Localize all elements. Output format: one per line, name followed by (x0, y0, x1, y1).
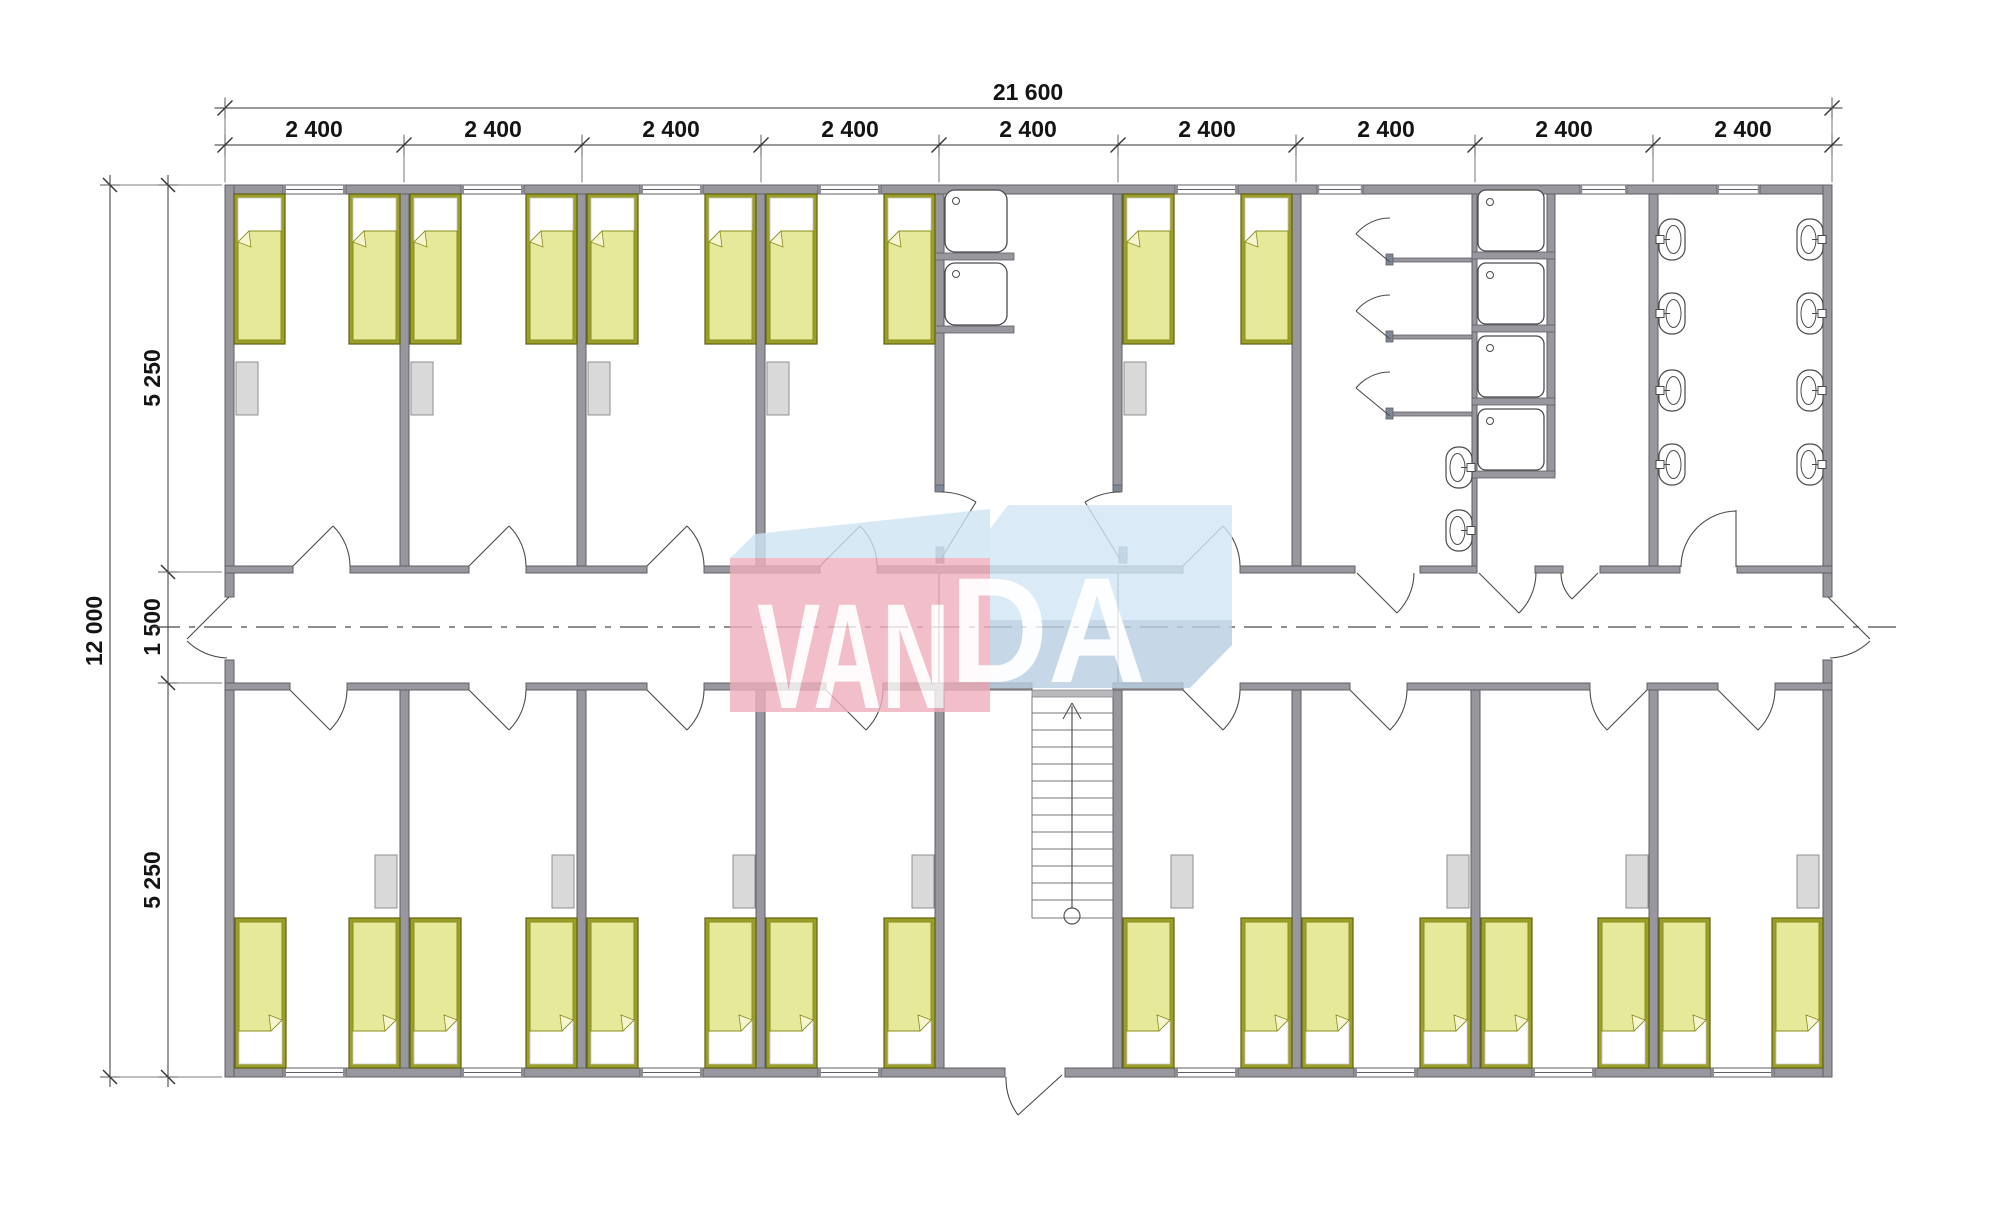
shower-tray (1478, 190, 1544, 251)
dimension-left: 12 000 5 250 1 500 5 250 (81, 175, 222, 1087)
door-swing (1350, 690, 1407, 730)
wash-basin (1656, 370, 1685, 411)
bed (884, 918, 935, 1068)
door-swing (647, 526, 704, 566)
bed (1598, 918, 1649, 1068)
door-swing (290, 690, 347, 730)
window (1317, 185, 1363, 194)
window (1175, 185, 1238, 194)
wash-basin (1797, 444, 1826, 485)
kitchen-sink (945, 190, 1007, 252)
locker (733, 855, 755, 908)
dim-seg: 2 400 (1357, 116, 1415, 142)
window (1175, 1068, 1238, 1077)
dim-seg: 2 400 (1714, 116, 1772, 142)
door-swing (1357, 573, 1414, 613)
window (1711, 1068, 1774, 1077)
dim-seg: 2 400 (821, 116, 879, 142)
vanda-watermark: VAN DA (730, 505, 1232, 740)
door-swing (647, 690, 704, 730)
bed (410, 194, 461, 344)
door-swing (1479, 573, 1536, 613)
locker (236, 362, 258, 415)
dim-seg: 2 400 (999, 116, 1057, 142)
locker (767, 362, 789, 415)
bed (1420, 918, 1471, 1068)
wash-basin (1656, 293, 1685, 334)
locker (1171, 855, 1193, 908)
dim-seg: 2 400 (464, 116, 522, 142)
window (1717, 185, 1760, 194)
bed (1123, 194, 1174, 344)
door-swing (1590, 690, 1647, 730)
dim-seg: 5 250 (139, 851, 165, 909)
bed (234, 194, 285, 344)
floor-plan-canvas: 21 600 2 400 2 400 2 400 2 400 2 400 2 4… (0, 0, 2000, 1219)
door-swing (1356, 218, 1390, 262)
bed (1302, 918, 1353, 1068)
door-swing (1681, 510, 1736, 567)
window (640, 185, 703, 194)
bed (705, 918, 756, 1068)
wash-basin (1797, 293, 1826, 334)
door-swing (1718, 690, 1775, 730)
window (1532, 1068, 1595, 1077)
dim-seg: 2 400 (1535, 116, 1593, 142)
locker (411, 362, 433, 415)
watermark-text-da: DA (950, 546, 1146, 714)
bed (587, 918, 638, 1068)
wash-basin (1656, 219, 1685, 260)
bed (349, 194, 400, 344)
bed (1659, 918, 1710, 1068)
door-swing (1356, 295, 1390, 339)
locker (552, 855, 574, 908)
bed (349, 918, 400, 1068)
dim-seg: 5 250 (139, 349, 165, 407)
door-swing (469, 526, 526, 566)
wash-basin (1446, 510, 1475, 551)
bed (410, 918, 461, 1068)
locker (1626, 855, 1648, 908)
window (1580, 185, 1627, 194)
wash-basin (1446, 447, 1475, 488)
floor-plan-svg: 21 600 2 400 2 400 2 400 2 400 2 400 2 4… (0, 0, 2000, 1219)
locker (1447, 855, 1469, 908)
shower-tray (1478, 336, 1544, 397)
bed (884, 194, 935, 344)
stairs (1032, 690, 1113, 924)
wash-basin (1797, 370, 1826, 411)
sanitary-fixtures (945, 190, 1826, 551)
window (818, 1068, 881, 1077)
door-swing (1561, 573, 1598, 599)
bed (1772, 918, 1823, 1068)
window (461, 1068, 524, 1077)
stair-start-circle (1064, 908, 1080, 924)
stair-direction (1063, 703, 1081, 924)
window (283, 1068, 346, 1077)
door-swing (1183, 690, 1240, 730)
kitchen-sink (945, 263, 1007, 325)
bed (766, 194, 817, 344)
wash-basin (1656, 444, 1685, 485)
dim-top-total: 21 600 (993, 79, 1063, 105)
door-swing (1006, 1075, 1062, 1115)
bed (1481, 918, 1532, 1068)
shower-tray (1478, 263, 1544, 324)
wash-basin (1797, 219, 1826, 260)
bed (1241, 194, 1292, 344)
locker (375, 855, 397, 908)
bed (1123, 918, 1174, 1068)
dim-seg: 2 400 (285, 116, 343, 142)
watermark-text-van: VAN (757, 572, 950, 740)
locker (1797, 855, 1819, 908)
window (818, 185, 881, 194)
window (640, 1068, 703, 1077)
door-swing (293, 526, 350, 566)
door-swing (469, 690, 526, 730)
locker (588, 362, 610, 415)
bed (526, 194, 577, 344)
dim-seg: 2 400 (1178, 116, 1236, 142)
dim-seg: 2 400 (642, 116, 700, 142)
window (461, 185, 524, 194)
door-swing (1356, 372, 1390, 416)
locker (1124, 362, 1146, 415)
window (1354, 1068, 1417, 1077)
bed (1241, 918, 1292, 1068)
window (283, 185, 346, 194)
bed (526, 918, 577, 1068)
bed (705, 194, 756, 344)
dimension-top: 21 600 2 400 2 400 2 400 2 400 2 400 2 4… (215, 79, 1842, 182)
shower-tray (1478, 409, 1544, 470)
bed (587, 194, 638, 344)
dim-left-total: 12 000 (81, 596, 107, 666)
locker (912, 855, 934, 908)
bed (235, 918, 286, 1068)
bed (766, 918, 817, 1068)
